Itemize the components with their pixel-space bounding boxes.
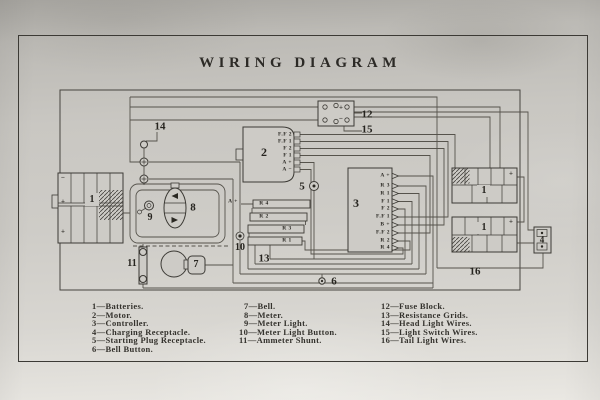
grid-bar1-label: R 4 xyxy=(259,201,269,207)
controller-terminal-ff2: F.F 2 xyxy=(376,230,390,236)
label-resistance-grids: 13 xyxy=(259,254,270,265)
label-starting-plug: 5 xyxy=(299,182,305,193)
controller-shape xyxy=(348,168,399,252)
legend-column-3: 12—Fuse Block. 13—Resistance Grids. 14—H… xyxy=(381,302,478,345)
battery-left-plus-mark2: + xyxy=(61,229,65,236)
motor-terminal-a-minus: A − xyxy=(282,167,292,173)
label-ammeter-shunt: 11 xyxy=(127,259,136,269)
legend-column-2: 7—Bell. 8—Meter. 9—Meter Light. 10—Meter… xyxy=(239,302,337,345)
junction-terminals xyxy=(140,141,148,183)
label-tail-light-wires: 16 xyxy=(470,267,481,278)
meter-light-button-shape xyxy=(236,232,244,240)
battery-right-top-plus-mark: + xyxy=(509,170,513,177)
battery-left-plus-mark1: + xyxy=(61,199,65,206)
label-meter: 8 xyxy=(190,203,196,214)
fuse-block-shape xyxy=(318,101,354,126)
starting-plug-shape xyxy=(310,182,319,191)
label-motor: 2 xyxy=(261,146,267,158)
label-meter-light: 9 xyxy=(148,213,153,223)
motor-terminal-ff2: F.F 2 xyxy=(278,132,292,138)
battery-left-minus-mark: − xyxy=(61,175,65,182)
legend-column-1: 1—Batteries. 2—Motor. 3—Controller. 4—Ch… xyxy=(92,302,206,354)
label-head-light-wires: 14 xyxy=(155,122,166,133)
legend-item: 16—Tail Light Wires. xyxy=(381,336,478,345)
grid-bar4-label: R 1 xyxy=(282,238,292,244)
label-fuse-block: 12 xyxy=(362,110,373,121)
label-bell: 7 xyxy=(194,260,199,270)
label-meter-light-button: 10 xyxy=(235,243,245,253)
controller-terminal-r1: R 1 xyxy=(380,191,390,197)
legend-item: 11—Ammeter Shunt. xyxy=(239,336,337,345)
grid-bar2-label: R 2 xyxy=(259,214,269,220)
controller-terminal-f1: F 1 xyxy=(381,199,390,205)
legend-item: 6—Bell Button. xyxy=(92,345,206,354)
controller-terminal-a-plus: A + xyxy=(380,173,390,179)
label-battery-right-top: 1 xyxy=(482,186,487,196)
grid-bar3-label: R 3 xyxy=(282,226,292,232)
fuse-minus-mark: − xyxy=(339,116,343,123)
controller-terminal-b-plus: B + xyxy=(380,222,390,228)
label-charging-receptacle: 4 xyxy=(540,236,545,245)
motor-terminal-f1: F 1 xyxy=(283,153,292,159)
label-battery-right-bottom: 1 xyxy=(482,223,487,233)
motor-terminal-a-plus: A + xyxy=(282,160,292,166)
label-battery-left: 1 xyxy=(90,195,95,205)
controller-terminal-ff1: F.F 1 xyxy=(376,214,390,220)
controller-terminal-r2: R 2 xyxy=(380,238,390,244)
label-light-switch-wires: 15 xyxy=(362,125,373,136)
battery-right-bottom-plus-mark: + xyxy=(509,218,513,225)
controller-terminal-r4: R 4 xyxy=(380,245,390,251)
fuse-plus-mark: + xyxy=(339,104,343,111)
resistance-grids-shape xyxy=(248,200,310,245)
bell-button-shape xyxy=(319,278,325,284)
motor-terminal-ff1: F.F 1 xyxy=(278,139,292,145)
grid-feed-label: A + xyxy=(228,199,238,205)
label-bell-button: 6 xyxy=(331,277,337,288)
motor-terminal-f2: F 2 xyxy=(283,146,292,152)
controller-terminal-r3: R 3 xyxy=(380,183,390,189)
controller-terminal-f2: F 2 xyxy=(381,206,390,212)
ammeter-shunt-shape xyxy=(139,247,147,284)
label-controller: 3 xyxy=(353,197,359,209)
